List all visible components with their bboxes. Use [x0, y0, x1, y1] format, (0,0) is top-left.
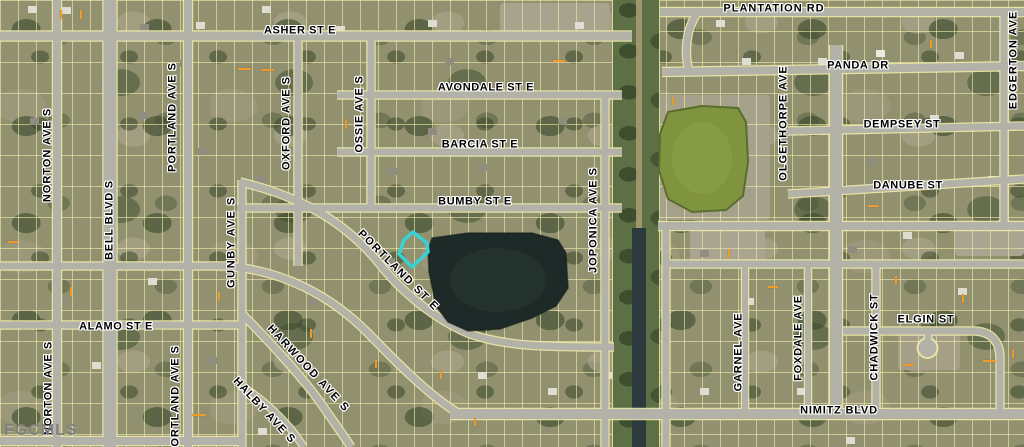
survey-dash [672, 97, 674, 105]
street-label-plantation-rd: PLANTATION RD [723, 4, 824, 15]
survey-dash [375, 360, 377, 368]
street-label-bumby-st-e: BUMBY ST E [438, 197, 512, 208]
street-label-norton-ave-s: NORTON AVE S [44, 341, 55, 435]
map-canvas[interactable]: PLANTATION RDASHER ST EAVONDALE ST EBARC… [0, 0, 1024, 447]
survey-dash [70, 287, 72, 296]
survey-dash [218, 292, 220, 301]
survey-dash [728, 249, 730, 258]
street-label-oxford-ave-s: OXFORD AVE S [282, 76, 293, 170]
highlighted-parcel[interactable] [399, 232, 428, 267]
survey-dash [310, 329, 312, 338]
cul-de-sac [919, 339, 937, 357]
survey-dash [440, 371, 442, 379]
survey-dash [8, 241, 18, 243]
survey-dash [60, 10, 62, 19]
survey-dash [192, 414, 206, 416]
street-label-edgerton-ave: EDGERTON AVE [1009, 11, 1020, 110]
street-label-asher-st-e: ASHER ST E [264, 26, 336, 37]
survey-dash [983, 360, 996, 362]
street-label-alamo-st-e: ALAMO ST E [79, 322, 153, 333]
street-label-joponica-ave-s: JOPONICA AVE S [589, 167, 600, 273]
street-label-norton-ave-s: NORTON AVE S [43, 108, 54, 202]
survey-dash [238, 68, 251, 70]
street-label-foxdale-ave: FOXDALE AVE [794, 295, 805, 381]
watermark: FGCMLS [4, 422, 78, 440]
street-label-ossie-ave-s: OSSIE AVE S [355, 75, 366, 152]
street-label-portland-ave-s: PORTLAND AVE S [168, 62, 179, 172]
lake-shading [450, 248, 546, 312]
street-label-avondale-st-e: AVONDALE ST E [438, 83, 534, 94]
survey-dash [1012, 349, 1014, 358]
survey-dash [345, 119, 347, 129]
street-label-danube-st: DANUBE ST [873, 181, 943, 192]
survey-dash [553, 60, 565, 62]
street-label-bell-blvd-s: BELL BLVD S [105, 180, 116, 260]
survey-dash [768, 286, 778, 288]
street-label-chadwick-st: CHADWICK ST [870, 293, 881, 380]
survey-dash [895, 276, 897, 285]
survey-dash [80, 10, 82, 19]
street-label-elgin-st: ELGIN ST [897, 315, 954, 326]
survey-dash [962, 294, 964, 303]
street-label-gunby-ave-s: GUNBY AVE S [227, 196, 238, 288]
retention-pond-shading [672, 122, 732, 194]
survey-dash [474, 418, 476, 426]
street-label-nimitz-blvd: NIMITZ BLVD [800, 406, 878, 417]
street-label-dempsey-st: DEMPSEY ST [864, 120, 941, 131]
street-label-panda-dr: PANDA DR [827, 61, 889, 72]
survey-dash [868, 205, 879, 207]
survey-dash [903, 364, 914, 366]
survey-dash [930, 40, 932, 48]
survey-dash [261, 69, 274, 71]
street-label-barcia-st-e: BARCIA ST E [442, 140, 518, 151]
street-label-olgethorpe-ave: OLGETHORPE AVE [779, 65, 790, 180]
street-label-garnel-ave: GARNEL AVE [734, 313, 745, 392]
street-label-portland-ave-s: PORTLAND AVE S [171, 345, 182, 447]
